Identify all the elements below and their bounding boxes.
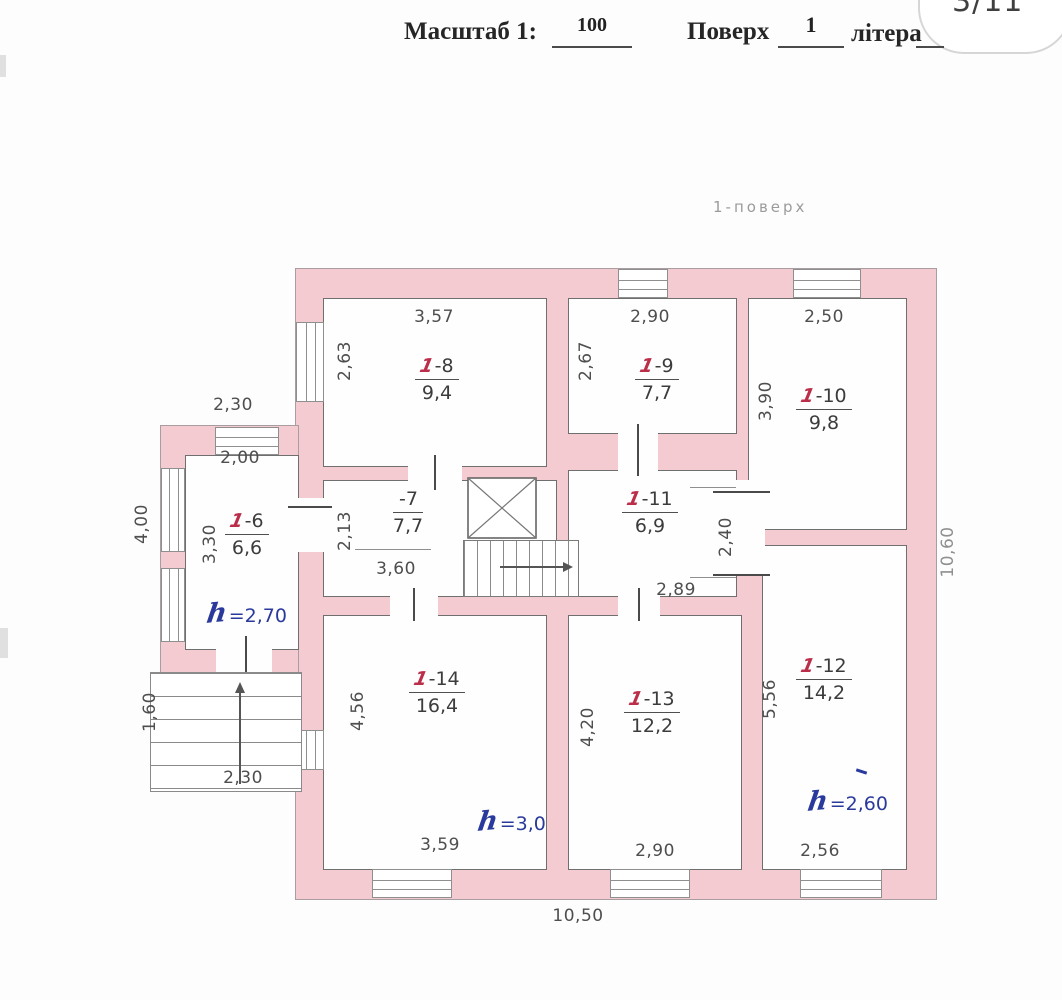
dim-room14-height: 4,56 xyxy=(348,676,368,746)
door-tick xyxy=(413,588,415,621)
room-label-1-8: 1-8 9,4 xyxy=(387,355,487,404)
room-label-1-9: 1-9 7,7 xyxy=(607,355,707,404)
room-area: 6,9 xyxy=(600,515,700,537)
room-number-prefix: 1 xyxy=(228,510,246,532)
page-indicator: 3/11 xyxy=(952,0,1023,19)
room-area: 7,7 xyxy=(607,382,707,404)
window-annex-left-2 xyxy=(161,568,185,642)
dim-room6-height: 3,30 xyxy=(200,509,220,579)
dim-porch-height: 1,60 xyxy=(140,677,160,747)
dim-room9-height: 2,67 xyxy=(576,326,596,396)
letter-value xyxy=(916,14,944,48)
dim-porch-width: 2,30 xyxy=(208,768,278,788)
door-tick xyxy=(288,506,332,508)
dim-room12-height: 5,56 xyxy=(760,664,780,734)
room-number-suffix: -14 xyxy=(429,668,460,690)
room-number-suffix: -7 xyxy=(399,488,418,510)
room-number: 1-14 xyxy=(409,668,464,693)
door-tick xyxy=(713,491,770,493)
dim-room6-width: 2,00 xyxy=(205,448,275,468)
height-note-1-12: h=2,60 xyxy=(798,786,898,817)
room-label-1-14: 1-14 16,4 xyxy=(387,668,487,717)
room-label-1-13: 1-13 12,2 xyxy=(602,688,702,737)
stair-direction-line xyxy=(500,566,564,568)
room-label-1-11: 1-11 6,9 xyxy=(600,488,700,537)
dim-right-height: 10,60 xyxy=(938,517,958,587)
room-area: 14,2 xyxy=(774,682,874,704)
window-annex-left-1 xyxy=(161,468,185,552)
dim-room9-width: 2,90 xyxy=(615,307,685,327)
scan-artifact xyxy=(0,55,6,77)
dim-room13-height: 4,20 xyxy=(578,692,598,762)
dim-room10-height: 3,90 xyxy=(756,366,776,436)
door-tick xyxy=(637,424,639,476)
room-number: 1-6 xyxy=(225,510,268,535)
dim-room13-width: 2,90 xyxy=(620,841,690,861)
room-number-suffix: -13 xyxy=(644,688,675,710)
room-number-prefix: 1 xyxy=(799,385,817,407)
floor-label: Поверх xyxy=(687,18,769,46)
room-area: 9,4 xyxy=(387,382,487,404)
dim-room8-height: 2,63 xyxy=(335,326,355,396)
room-number-suffix: -10 xyxy=(816,385,847,407)
scanned-floor-plan-page: Масштаб 1: 100 Поверх 1 літера 3/11 1-по… xyxy=(0,0,1062,1000)
dim-room7-width: 3,60 xyxy=(361,559,431,579)
scale-label: Масштаб 1: xyxy=(404,18,537,46)
room-label-1-7: -7 7,7 xyxy=(358,488,458,537)
room-number-prefix: 1 xyxy=(799,655,817,677)
room-number-suffix: -9 xyxy=(655,355,674,377)
room-number-suffix: -12 xyxy=(816,655,847,677)
scale-value: 100 xyxy=(552,14,632,48)
window-top-1 xyxy=(618,269,668,298)
dim-room11-height: 2,40 xyxy=(716,502,736,572)
dim-room12-width: 2,56 xyxy=(785,841,855,861)
porch-arrow-icon xyxy=(235,682,245,693)
window-bottom-1 xyxy=(372,869,452,898)
room-number-prefix: 1 xyxy=(627,688,645,710)
window-bottom-3 xyxy=(800,869,882,898)
elevator-shaft xyxy=(467,477,537,539)
room-number: 1-8 xyxy=(415,355,458,380)
room-number-prefix: 1 xyxy=(418,355,436,377)
height-value: =3,0 xyxy=(500,813,546,835)
door-tick xyxy=(434,455,436,490)
door-tick xyxy=(638,588,640,621)
room-number-suffix: -11 xyxy=(642,488,673,510)
room-label-1-10: 1-10 9,8 xyxy=(774,385,874,434)
height-symbol: h xyxy=(205,597,229,630)
door-opening-right-corridor xyxy=(735,480,765,576)
room-number-prefix: 1 xyxy=(625,488,643,510)
height-symbol: h xyxy=(806,785,830,818)
room-1-12 xyxy=(762,545,907,870)
dim-extension-line xyxy=(355,549,431,550)
room-number-prefix: 1 xyxy=(412,668,430,690)
room-label-1-12: 1-12 14,2 xyxy=(774,655,874,704)
room-number: 1-12 xyxy=(796,655,851,680)
door-tick xyxy=(713,574,770,576)
dim-room11-width: 2,89 xyxy=(641,580,711,600)
room-area: 9,8 xyxy=(774,412,874,434)
window-bottom-2 xyxy=(610,869,690,898)
height-symbol: h xyxy=(476,805,500,838)
room-number: -7 xyxy=(393,488,423,513)
dim-room8-width: 3,57 xyxy=(399,307,469,327)
room-area: 16,4 xyxy=(387,695,487,717)
room-number: 1-13 xyxy=(624,688,679,713)
dim-bottom-width: 10,50 xyxy=(543,906,613,926)
floor-value: 1 xyxy=(778,12,844,48)
room-number: 1-9 xyxy=(635,355,678,380)
entry-door-opening xyxy=(216,645,272,674)
dim-extension-line xyxy=(690,577,736,578)
scan-artifact xyxy=(0,628,8,658)
interior-staircase xyxy=(463,540,579,597)
stair-direction-arrow-icon xyxy=(563,562,573,572)
room-number: 1-10 xyxy=(796,385,851,410)
room-area: 7,7 xyxy=(358,515,458,537)
room-number-prefix: 1 xyxy=(638,355,656,377)
height-note-1-6: h=2,70 xyxy=(197,598,297,629)
height-note-1-14: h=3,0 xyxy=(462,806,562,837)
height-value: =2,70 xyxy=(229,605,287,627)
room-number-suffix: -8 xyxy=(435,355,454,377)
room-number-suffix: -6 xyxy=(245,510,264,532)
dim-room10-width: 2,50 xyxy=(789,307,859,327)
letter-label: літера xyxy=(851,20,922,48)
height-value: =2,60 xyxy=(830,793,888,815)
dim-annex-top: 2,30 xyxy=(198,395,268,415)
room-number: 1-11 xyxy=(622,488,677,513)
dim-room7-height: 2,13 xyxy=(335,496,355,566)
plan-caption: 1-поверх xyxy=(713,198,807,216)
window-left-1 xyxy=(296,322,324,402)
dim-left-height: 4,00 xyxy=(132,489,152,559)
room-area: 12,2 xyxy=(602,715,702,737)
dim-room14-width: 3,59 xyxy=(405,835,475,855)
window-top-2 xyxy=(793,269,861,298)
